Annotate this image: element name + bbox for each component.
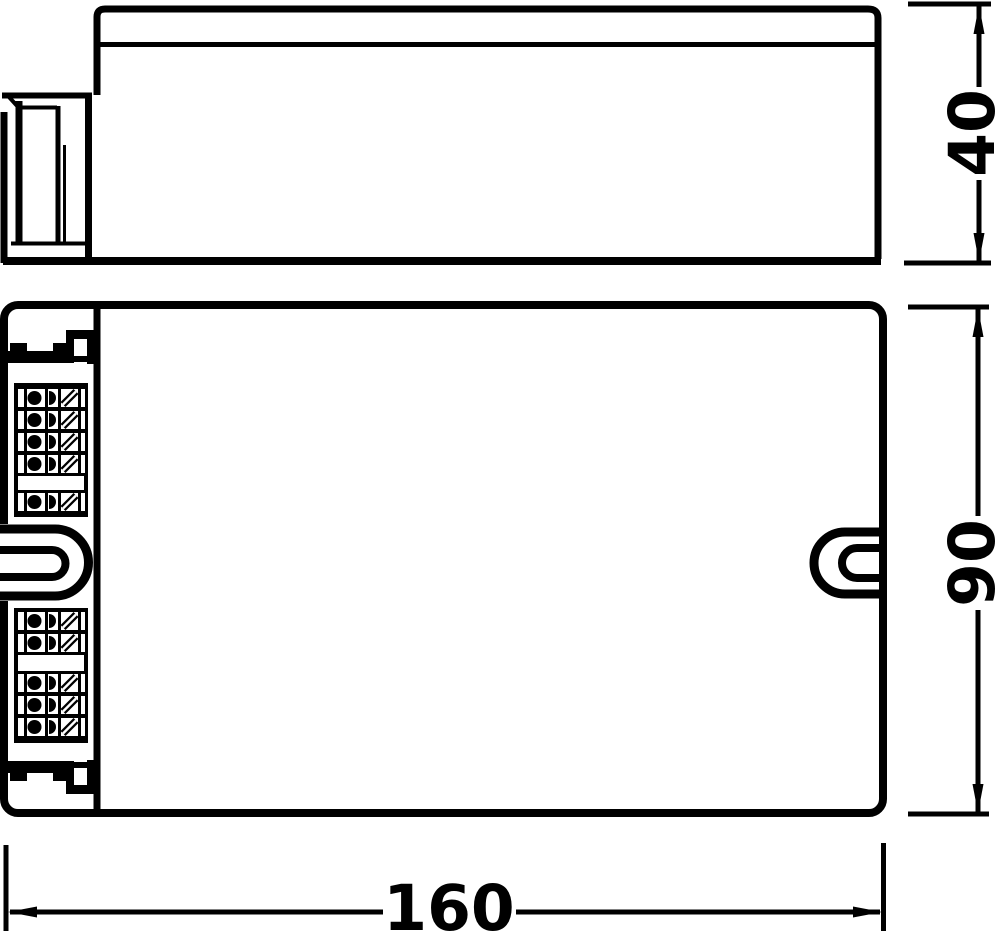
arrow-down-icon [974, 233, 985, 262]
technical-drawing-page: 40 90 160 [0, 0, 1000, 933]
mounting-slot-left [0, 524, 88, 601]
dim-height: 40 [904, 4, 1000, 263]
arrow-up-icon [974, 5, 985, 34]
arrow-up-icon [973, 308, 984, 337]
strain-relief-bottom [8, 760, 94, 794]
dim-depth-label: 90 [936, 519, 1000, 607]
arrow-left-icon [8, 907, 37, 918]
dimension-annotations: 40 90 160 [6, 4, 1000, 933]
dim-depth: 90 [908, 307, 1000, 814]
arrow-right-icon [853, 907, 882, 918]
side-view [2, 9, 881, 263]
side-connector-profile [2, 95, 92, 263]
top-view [0, 302, 883, 815]
strain-relief-top [8, 330, 94, 364]
dim-height-label: 40 [936, 89, 1000, 177]
drawing-canvas: 40 90 160 [0, 0, 1000, 933]
terminal-block-top [14, 383, 88, 517]
top-body-outline [4, 305, 883, 813]
dim-length: 160 [6, 843, 884, 933]
dim-length-label: 160 [383, 872, 515, 933]
mounting-slot-right [814, 532, 883, 594]
terminal-block-bottom [14, 608, 88, 743]
arrow-down-icon [973, 784, 984, 813]
